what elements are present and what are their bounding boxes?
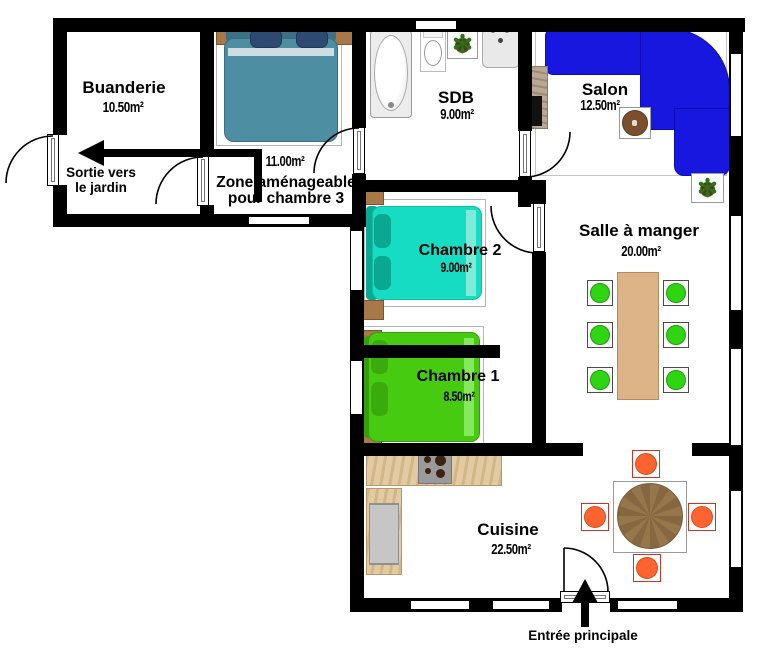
window bbox=[415, 20, 457, 30]
bed3-sheet-band bbox=[228, 48, 334, 56]
washbasin-drain bbox=[498, 38, 503, 43]
stove-burner bbox=[436, 469, 445, 478]
room-area-salon: 12.50m² bbox=[575, 99, 626, 115]
room-area-buanderie: 10.50m² bbox=[97, 100, 149, 117]
window bbox=[730, 348, 742, 446]
stove-burner bbox=[424, 456, 431, 463]
window bbox=[730, 215, 742, 311]
room-area-zone: 11.00m² bbox=[260, 155, 310, 171]
window bbox=[730, 53, 742, 137]
area-value: 8.50m² bbox=[443, 390, 474, 405]
wall-sdb-chambre2 bbox=[358, 180, 532, 192]
dining-chair bbox=[663, 280, 689, 306]
wall-chambre1-chambre2 bbox=[352, 345, 500, 358]
kitchen-chair bbox=[581, 503, 609, 531]
plant-salon: ✻ bbox=[691, 173, 724, 203]
garden-exit-line2: le jardin bbox=[66, 180, 136, 195]
wall-exterior-top bbox=[53, 18, 745, 32]
room-area-chambre2: 9.00m² bbox=[436, 261, 476, 276]
area-value: 22.50m² bbox=[491, 543, 530, 559]
area-value: 12.50m² bbox=[580, 99, 619, 115]
room-label-chambre2: Chambre 2 bbox=[419, 242, 502, 260]
kitchen-chair bbox=[633, 554, 661, 582]
bed1-pillow bbox=[371, 382, 388, 416]
entrance-arrow-shaft bbox=[581, 601, 589, 627]
window bbox=[248, 216, 310, 225]
dining-chair bbox=[663, 367, 689, 393]
room-label-salle-a-manger: Salle à manger bbox=[579, 222, 699, 241]
room-area-chambre1: 8.50m² bbox=[439, 390, 479, 405]
window bbox=[730, 490, 742, 568]
bed2-pillow bbox=[374, 256, 391, 290]
window bbox=[350, 360, 363, 415]
room-label-zone: Zone aménageable pour chambre 3 bbox=[216, 175, 356, 207]
plant-sdb: ✻ bbox=[447, 29, 478, 59]
dining-chair bbox=[663, 322, 689, 348]
room-label-chambre1: Chambre 1 bbox=[417, 368, 500, 386]
bed2-pillow bbox=[374, 214, 391, 248]
door-swing-arc bbox=[314, 128, 359, 173]
area-value: 9.00m² bbox=[440, 108, 474, 124]
garden-exit-arrow-shaft bbox=[98, 149, 262, 157]
garden-exit-arrow-elbow bbox=[254, 149, 262, 202]
room-area-salle-a-manger: 20.00m² bbox=[616, 245, 667, 261]
area-value: 11.00m² bbox=[266, 155, 305, 171]
wall-exterior-left-wing bbox=[53, 18, 67, 227]
door-swing-arc bbox=[6, 136, 53, 183]
corner-sofa bbox=[674, 108, 730, 176]
room-label-cuisine: Cuisine bbox=[477, 521, 538, 540]
area-value: 10.50m² bbox=[103, 100, 144, 117]
fridge bbox=[369, 503, 399, 565]
room-label-buanderie: Buanderie bbox=[82, 79, 165, 98]
door-swing-arc bbox=[156, 157, 203, 204]
area-value: 20.00m² bbox=[621, 245, 660, 261]
zone-label-line2: pour chambre 3 bbox=[216, 191, 356, 207]
bathtub-basin bbox=[374, 35, 408, 111]
room-area-cuisine: 22.50m² bbox=[486, 543, 537, 559]
room-label-salon: Salon bbox=[582, 81, 628, 100]
wall-cuisine-top bbox=[352, 443, 583, 456]
zone-label-line1: Zone aménageable bbox=[216, 175, 356, 191]
room-area-sdb: 9.00m² bbox=[436, 108, 479, 124]
window bbox=[492, 600, 550, 610]
window bbox=[617, 600, 678, 610]
annotation-main-entrance: Entrée principale bbox=[528, 629, 638, 644]
dining-chair bbox=[587, 280, 613, 306]
toilet-bowl bbox=[424, 40, 442, 66]
window bbox=[410, 600, 470, 610]
kitchen-chair bbox=[688, 503, 716, 531]
kitchen-chair bbox=[632, 450, 660, 478]
dining-chair bbox=[587, 322, 613, 348]
stove-burner bbox=[435, 455, 446, 466]
room-label-sdb: SDB bbox=[438, 89, 474, 108]
door-swing-arc bbox=[525, 132, 570, 177]
coffee-table-knot bbox=[632, 120, 637, 126]
dining-table bbox=[617, 272, 659, 400]
dining-chair bbox=[587, 367, 613, 393]
round-table bbox=[617, 483, 683, 549]
annotation-garden-exit: Sortie vers le jardin bbox=[66, 165, 136, 195]
stove-burner bbox=[425, 468, 431, 474]
entrance-arrowhead bbox=[572, 579, 598, 603]
area-value: 9.00m² bbox=[440, 261, 471, 276]
bathtub-drain bbox=[388, 102, 394, 108]
floor-plan: ✻ ✻ bbox=[0, 0, 779, 663]
garden-exit-line1: Sortie vers bbox=[66, 165, 136, 180]
window bbox=[350, 230, 363, 291]
washbasin bbox=[482, 28, 520, 68]
